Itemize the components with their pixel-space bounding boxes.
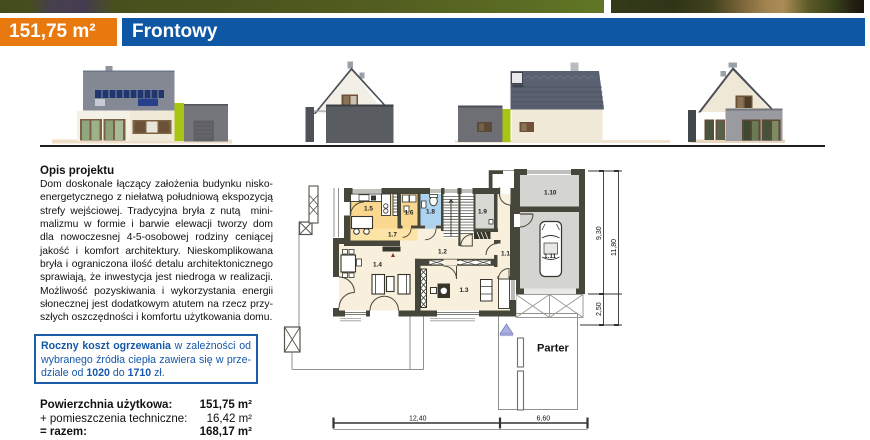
svg-text:1.2: 1.2: [438, 249, 447, 256]
svg-text:1.3: 1.3: [460, 287, 469, 294]
svg-text:6,60: 6,60: [537, 416, 551, 423]
svg-text:11,80: 11,80: [611, 239, 618, 256]
svg-text:1.1: 1.1: [501, 251, 510, 258]
svg-text:9,30: 9,30: [596, 226, 603, 240]
svg-text:2,50: 2,50: [596, 302, 603, 316]
svg-text:1.9: 1.9: [478, 209, 487, 216]
svg-text:1.8: 1.8: [426, 209, 435, 216]
svg-text:1.6: 1.6: [405, 210, 414, 217]
svg-text:1.7: 1.7: [388, 232, 397, 239]
svg-text:1.11: 1.11: [544, 253, 557, 260]
svg-text:1.5: 1.5: [364, 206, 373, 213]
svg-text:1.4: 1.4: [373, 262, 382, 269]
svg-text:12,40: 12,40: [409, 416, 427, 423]
svg-text:1.10: 1.10: [544, 190, 557, 197]
svg-text:Parter: Parter: [537, 343, 570, 355]
